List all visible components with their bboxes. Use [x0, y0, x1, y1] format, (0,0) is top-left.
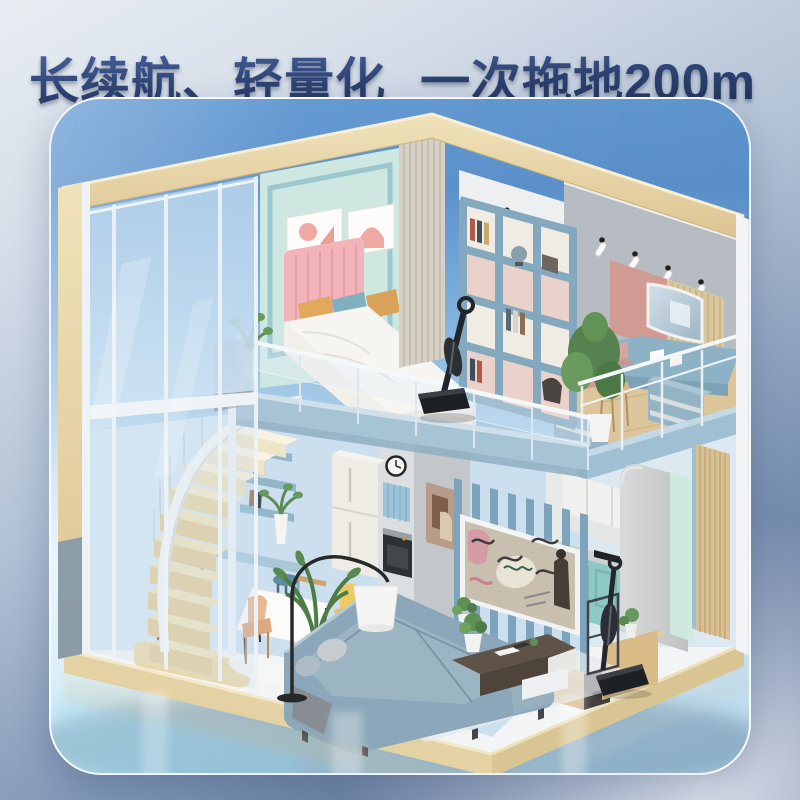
- built-in-oven: [383, 528, 412, 578]
- left-corner-column: [58, 182, 90, 659]
- corner-pillar-right: [736, 214, 750, 656]
- glass-curtain-wall: [84, 176, 258, 690]
- globe-decor: [511, 246, 527, 262]
- marketing-banner: { "headline": { "part1": "长续航、轻量化", "par…: [0, 0, 800, 800]
- black-bag-decor: [542, 378, 562, 404]
- product-scene-card: [49, 97, 751, 775]
- fridge: [332, 450, 386, 578]
- wood-slat-panel: [692, 442, 730, 640]
- headline-superscript: 2: [756, 45, 771, 73]
- apartment-scene-illustration: [49, 97, 751, 775]
- glass-door-mint: [670, 472, 694, 642]
- wall-clock: [387, 457, 406, 476]
